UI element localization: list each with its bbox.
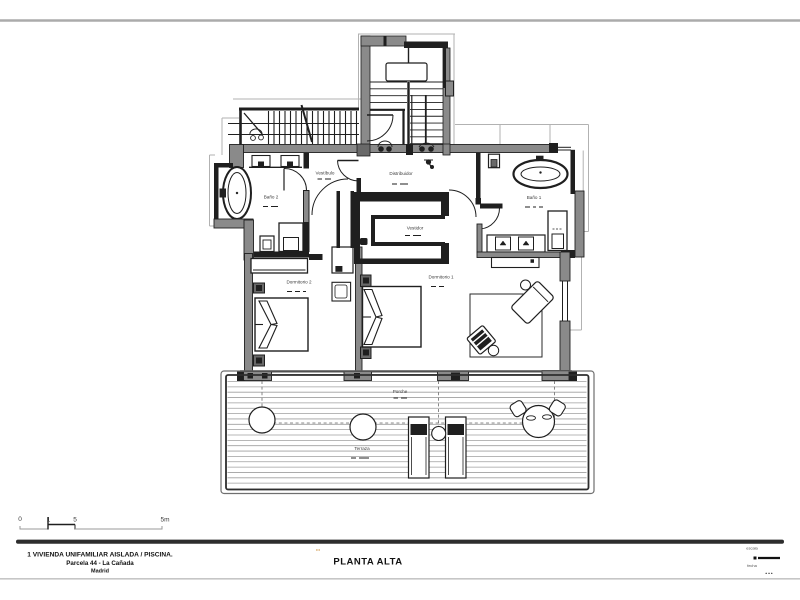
svg-text:escala: escala <box>746 546 758 551</box>
svg-text:Vestíbulo: Vestíbulo <box>316 171 335 176</box>
svg-text:fecha: fecha <box>747 563 758 568</box>
svg-text:Vestidor: Vestidor <box>407 225 424 230</box>
svg-text:Dormitorio 1: Dormitorio 1 <box>428 275 453 280</box>
svg-text:Baño 2: Baño 2 <box>264 195 279 200</box>
svg-text:1: 1 <box>47 517 51 524</box>
svg-text:5m: 5m <box>160 517 169 524</box>
svg-text:PLANTA ALTA: PLANTA ALTA <box>333 557 402 568</box>
svg-text:• • •: • • • <box>765 571 773 576</box>
svg-text:Parcela 44 - La Cañada: Parcela 44 - La Cañada <box>66 560 134 567</box>
svg-text:Terraza: Terraza <box>354 446 370 451</box>
svg-text:•••: ••• <box>316 547 321 552</box>
svg-text:Porche: Porche <box>393 389 408 394</box>
svg-text:5: 5 <box>73 517 77 524</box>
svg-text:Madrid: Madrid <box>91 569 109 575</box>
svg-text:Distribuidor: Distribuidor <box>389 171 413 176</box>
svg-text:1 VIVIENDA UNIFAMILIAR AISLADA: 1 VIVIENDA UNIFAMILIAR AISLADA / PISCINA… <box>27 552 173 559</box>
svg-text:Dormitorio 2: Dormitorio 2 <box>286 280 311 285</box>
svg-text:0: 0 <box>18 516 22 523</box>
svg-text:Baño 1: Baño 1 <box>527 195 542 200</box>
